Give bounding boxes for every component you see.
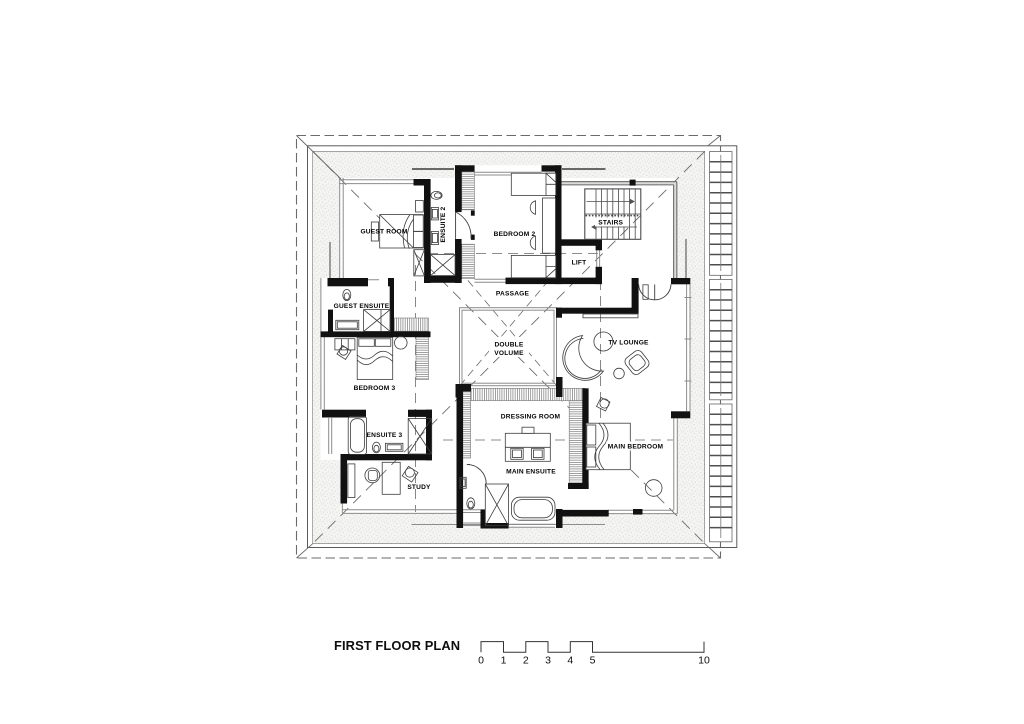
svg-text:FIRST FLOOR PLAN: FIRST FLOOR PLAN bbox=[334, 638, 460, 653]
svg-text:PASSAGE: PASSAGE bbox=[496, 291, 530, 298]
svg-text:DRESSING ROOM: DRESSING ROOM bbox=[501, 413, 561, 420]
svg-text:VOLUME: VOLUME bbox=[494, 350, 524, 357]
svg-text:MAIN BEDROOM: MAIN BEDROOM bbox=[608, 444, 664, 451]
svg-text:ENSUITE 2: ENSUITE 2 bbox=[440, 206, 447, 242]
svg-text:TV LOUNGE: TV LOUNGE bbox=[608, 339, 649, 346]
svg-text:STAIRS: STAIRS bbox=[598, 220, 623, 227]
svg-text:5: 5 bbox=[590, 655, 596, 667]
svg-text:1: 1 bbox=[501, 655, 507, 667]
svg-text:LIFT: LIFT bbox=[572, 260, 587, 267]
svg-text:GUEST ENSUITE: GUEST ENSUITE bbox=[334, 303, 390, 310]
svg-text:4: 4 bbox=[567, 655, 573, 667]
svg-text:3: 3 bbox=[545, 655, 551, 667]
svg-text:DOUBLE: DOUBLE bbox=[494, 342, 523, 349]
svg-text:GUEST ROOM: GUEST ROOM bbox=[360, 229, 407, 236]
svg-text:BEDROOM 3: BEDROOM 3 bbox=[354, 385, 396, 392]
svg-text:10: 10 bbox=[698, 655, 710, 667]
svg-text:0: 0 bbox=[478, 655, 484, 667]
svg-text:STUDY: STUDY bbox=[407, 484, 431, 491]
svg-text:BEDROOM 2: BEDROOM 2 bbox=[494, 231, 536, 238]
svg-text:MAIN ENSUITE: MAIN ENSUITE bbox=[506, 469, 556, 476]
svg-text:2: 2 bbox=[523, 655, 529, 667]
svg-text:ENSUITE 3: ENSUITE 3 bbox=[367, 432, 403, 439]
